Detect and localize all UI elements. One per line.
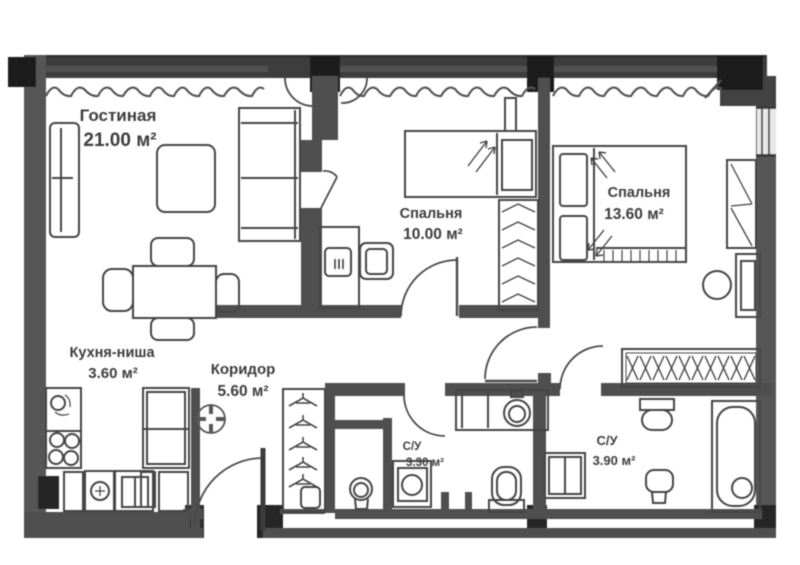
svg-text:10.00 м²: 10.00 м² xyxy=(403,226,463,243)
svg-text:3.30 м²: 3.30 м² xyxy=(406,457,444,469)
svg-text:Кухня-ниша: Кухня-ниша xyxy=(69,345,155,361)
svg-text:13.60 м²: 13.60 м² xyxy=(604,206,664,223)
svg-text:3.60 м²: 3.60 м² xyxy=(88,365,137,382)
svg-text:Гостиная: Гостиная xyxy=(80,106,157,125)
svg-text:5.60 м²: 5.60 м² xyxy=(217,383,268,400)
svg-text:С/У: С/У xyxy=(403,441,423,453)
svg-text:Спальня: Спальня xyxy=(608,185,671,201)
svg-text:Спальня: Спальня xyxy=(400,206,463,222)
svg-text:21.00 м²: 21.00 м² xyxy=(83,130,156,151)
svg-text:С/У: С/У xyxy=(596,433,618,448)
svg-text:3.90 м²: 3.90 м² xyxy=(593,453,637,468)
svg-text:Коридор: Коридор xyxy=(211,361,276,378)
